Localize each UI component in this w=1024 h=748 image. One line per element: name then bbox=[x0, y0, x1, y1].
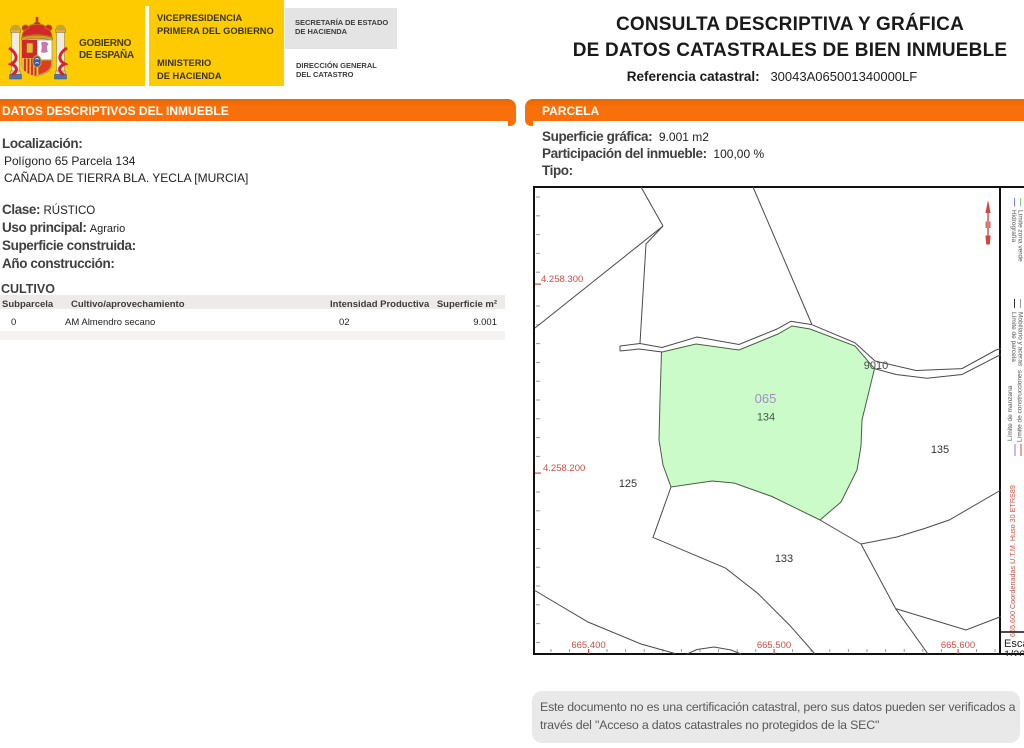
svg-text:133: 133 bbox=[775, 553, 793, 565]
svg-text:4.258.300: 4.258.300 bbox=[541, 274, 583, 285]
svg-text:4.258.200: 4.258.200 bbox=[543, 463, 585, 474]
svg-text:Límite de manzana: Límite de manzana bbox=[1007, 385, 1014, 441]
svg-text:665.600 Coordenadas U.T.M. Hus: 665.600 Coordenadas U.T.M. Huso 30 ETRS8… bbox=[1008, 485, 1017, 637]
svg-text:125: 125 bbox=[619, 478, 637, 490]
svg-text:Límite de construcciones: Límite de construcciones bbox=[1017, 369, 1024, 442]
svg-text:065: 065 bbox=[755, 391, 777, 406]
svg-text:Mobiliario y aceras: Mobiliario y aceras bbox=[1017, 312, 1024, 367]
svg-text:Límite de parcela: Límite de parcela bbox=[1010, 312, 1017, 362]
svg-text:Límite zona verde: Límite zona verde bbox=[1017, 210, 1024, 262]
svg-text:1/20: 1/20 bbox=[1004, 649, 1024, 656]
svg-text:134: 134 bbox=[757, 412, 775, 424]
svg-text:135: 135 bbox=[931, 444, 949, 456]
svg-text:9010: 9010 bbox=[864, 360, 888, 372]
svg-text:Hidrografía: Hidrografía bbox=[1010, 210, 1017, 243]
